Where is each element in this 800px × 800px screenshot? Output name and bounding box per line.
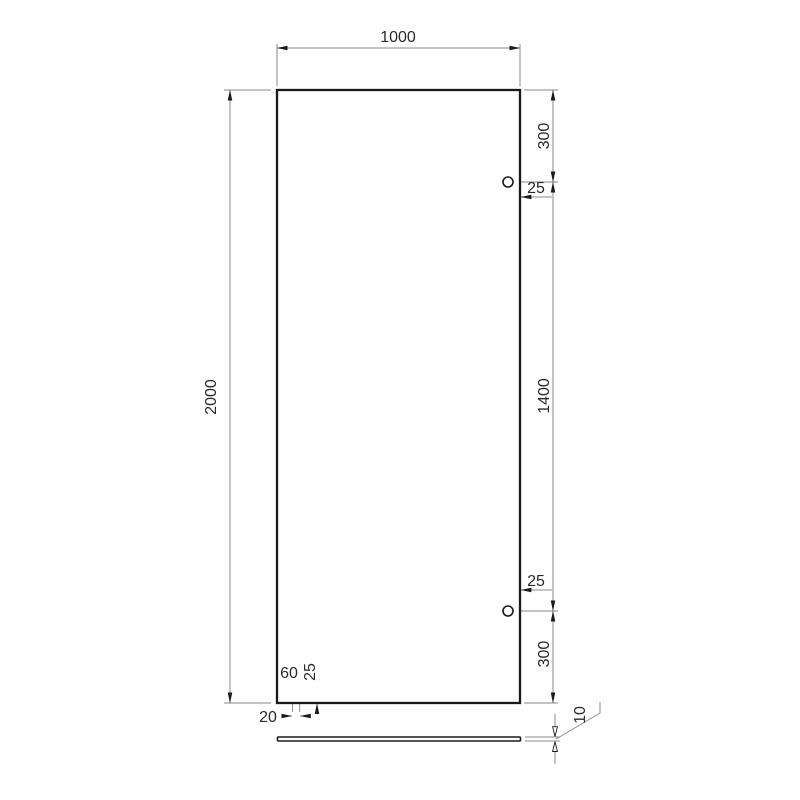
bottom-mounting-hole — [503, 606, 513, 616]
dim-label-slot-height: 25 — [302, 663, 319, 681]
drawing-canvas: 1000 2000 300 1400 300 25 25 60 25 20 10 — [0, 0, 800, 800]
dim-label-bottom-hole-edge: 25 — [527, 573, 545, 590]
dim-label-panel-height: 2000 — [203, 379, 220, 415]
bottom-seal-profile — [278, 737, 521, 741]
dim-label-slot-width: 20 — [259, 709, 277, 726]
dim-label-hole-spacing: 1400 — [536, 378, 553, 414]
glass-panel-outline — [277, 90, 520, 703]
dim-label-hole-bottom-offset: 300 — [536, 641, 553, 668]
dim-label-top-hole-edge: 25 — [527, 180, 545, 197]
dim-label-hole-top-offset: 300 — [536, 123, 553, 150]
dim-label-profile-thickness: 10 — [572, 706, 589, 724]
dim-label-slot-offset-left: 60 — [280, 665, 298, 682]
dim-label-panel-width: 1000 — [380, 29, 416, 46]
top-mounting-hole — [503, 177, 513, 187]
